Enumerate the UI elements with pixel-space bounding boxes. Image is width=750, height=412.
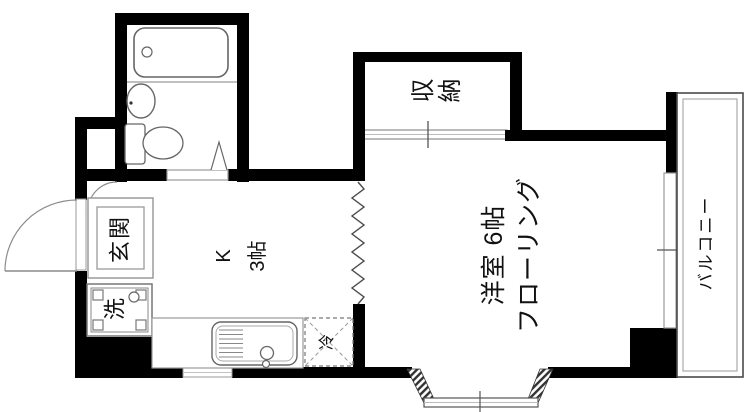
- wall-segment: [115, 13, 249, 25]
- room-label-balcony: バルコニー: [695, 196, 716, 291]
- floor-plan: 収納 洋室 6帖 フローリング K 3帖 玄関 洗 冷 バルコニー: [0, 0, 750, 412]
- room-label-laundry: 洗: [101, 298, 129, 320]
- wall-segment: [228, 169, 365, 181]
- toilet-tank: [125, 124, 145, 164]
- wall-segment: [353, 304, 365, 378]
- wall-segment: [353, 52, 365, 181]
- wall-segment: [505, 130, 678, 141]
- entrance-door-frame: [76, 199, 86, 270]
- western-room-size: 洋室 6帖: [480, 205, 508, 306]
- wall-segment: [353, 52, 522, 62]
- washbasin-faucet: [129, 101, 132, 104]
- wall-segment: [510, 52, 522, 140]
- bathroom-door-threshold: [167, 170, 228, 180]
- toilet-bowl: [143, 127, 183, 159]
- kitchen-letter: K: [213, 249, 235, 262]
- wall-segment: [75, 367, 183, 378]
- sink-faucet: [263, 361, 270, 368]
- western-room-flooring: フローリング: [515, 177, 543, 333]
- wall-segment: [232, 367, 412, 378]
- wall-segment: [237, 13, 249, 182]
- wall-segment: [630, 328, 678, 378]
- pan-corner: [93, 320, 103, 330]
- washbasin-icon: [127, 84, 155, 118]
- kitchen-size: 3帖: [247, 240, 269, 271]
- room-label-western-room: 洋室 6帖 フローリング: [477, 177, 547, 333]
- pan-corner: [136, 320, 146, 330]
- room-label-entrance: 玄関: [106, 215, 134, 263]
- washing-machine-faucet: [129, 292, 139, 302]
- bathtub-drain: [142, 47, 152, 57]
- wall-segment: [75, 117, 87, 200]
- room-label-kitchen: K 3帖: [207, 240, 275, 271]
- room-label-refrigerator: 冷: [318, 334, 338, 350]
- floor-plan-drawing: [0, 0, 750, 412]
- sink-drainboard-lines: [219, 330, 243, 357]
- wall-segment: [85, 169, 167, 181]
- wall-segment: [548, 367, 630, 378]
- sink-drain: [261, 347, 274, 360]
- room-label-storage: 収納: [410, 79, 464, 109]
